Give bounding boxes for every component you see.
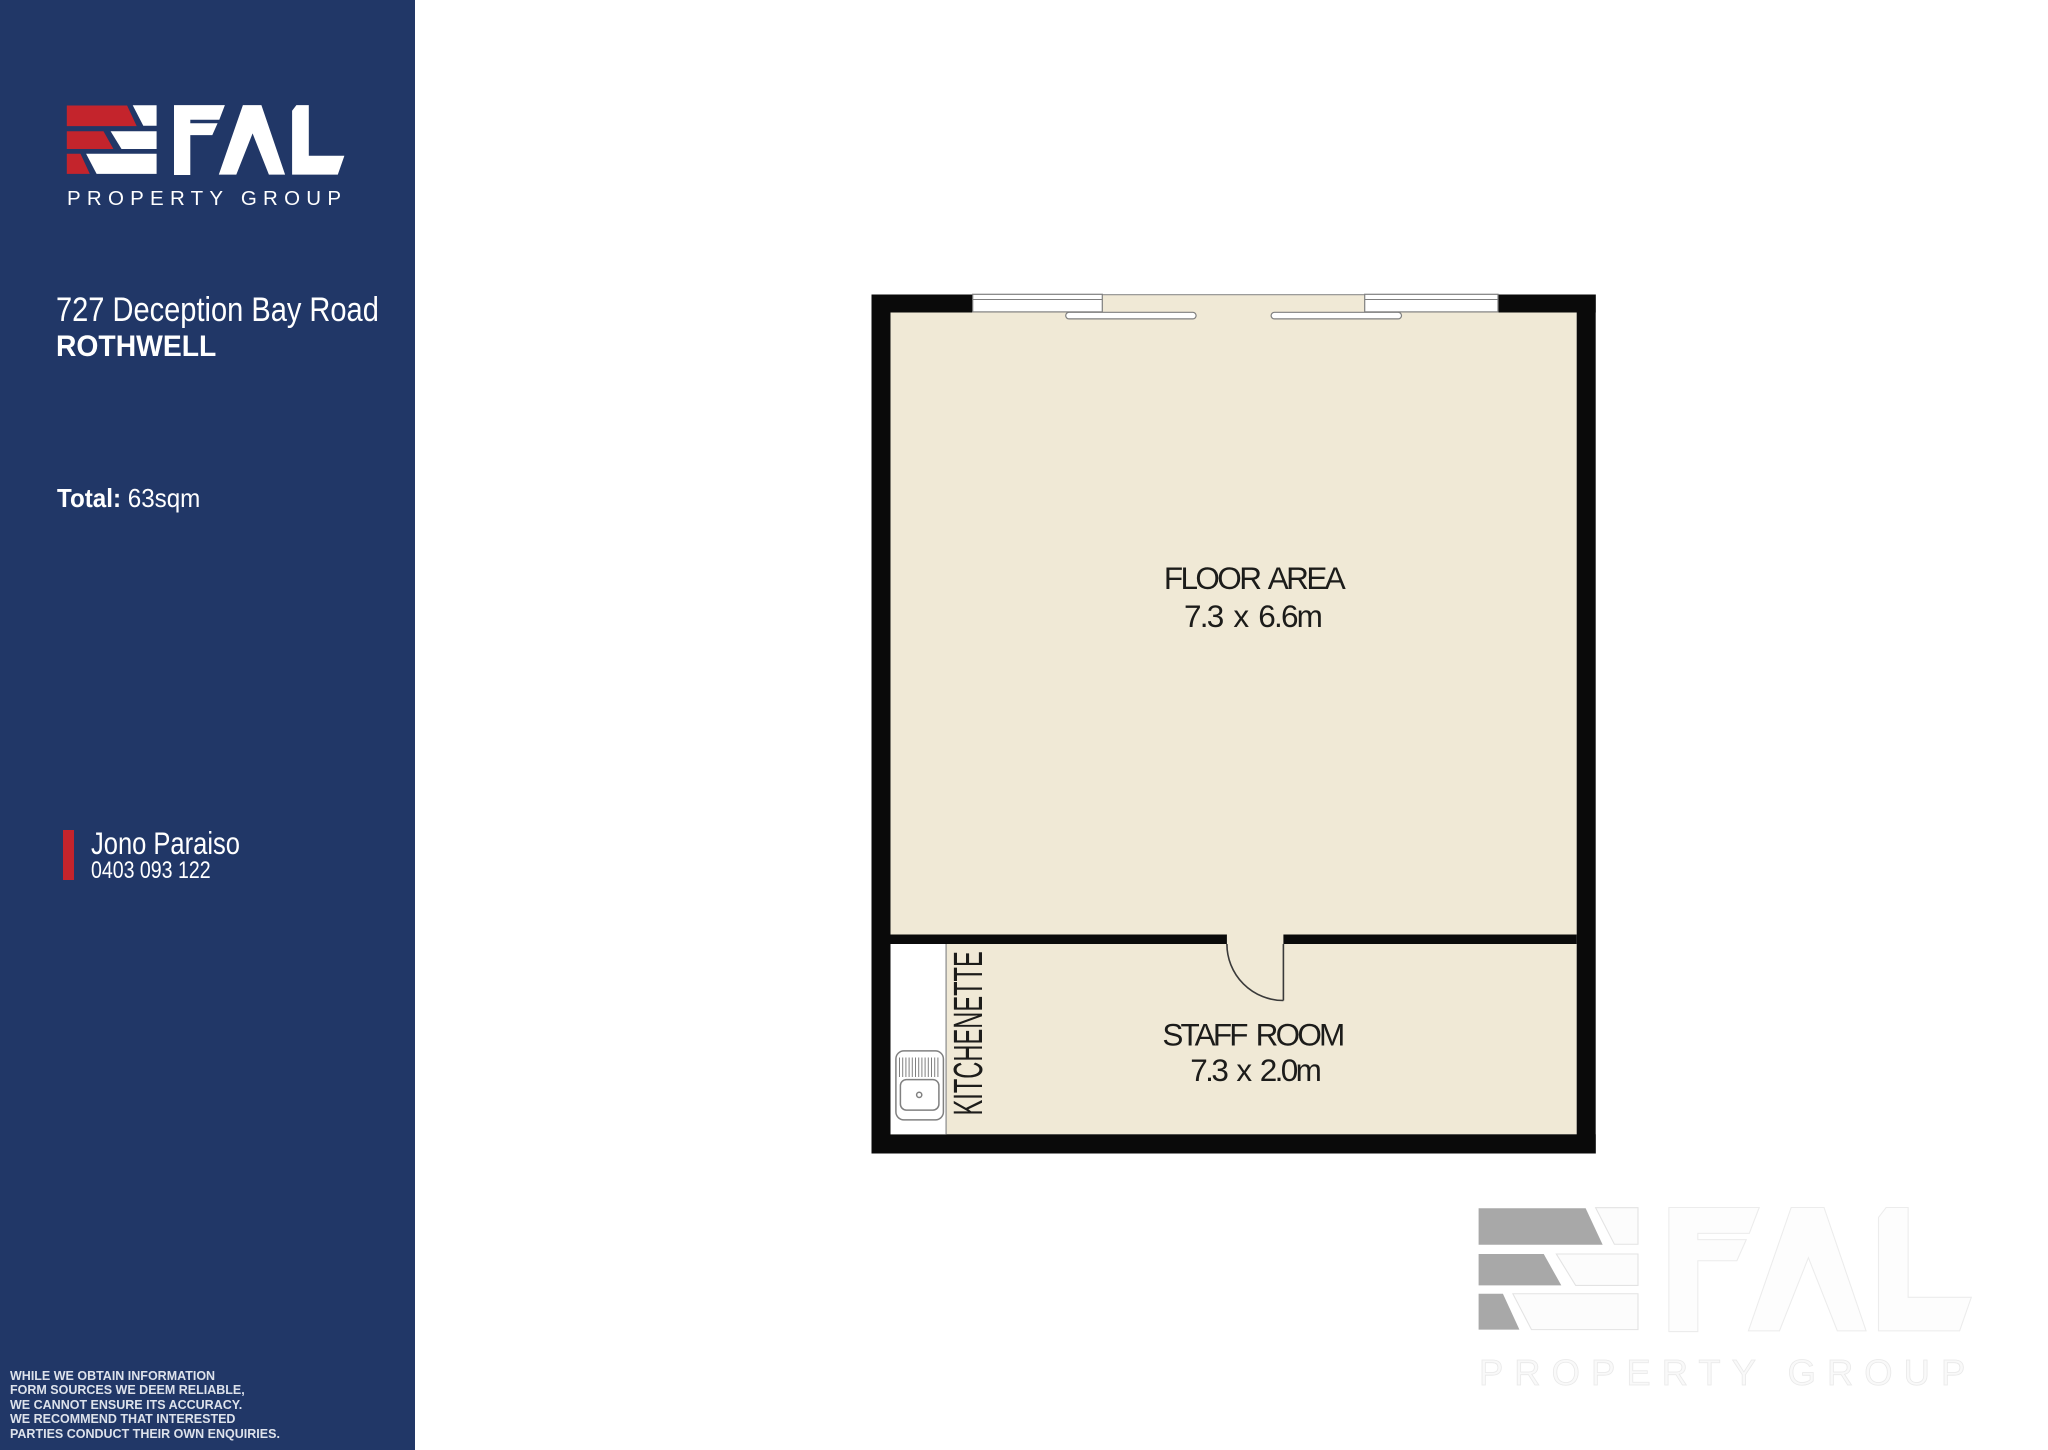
svg-text:PROPERTY GROUP: PROPERTY GROUP xyxy=(1479,1352,1965,1393)
